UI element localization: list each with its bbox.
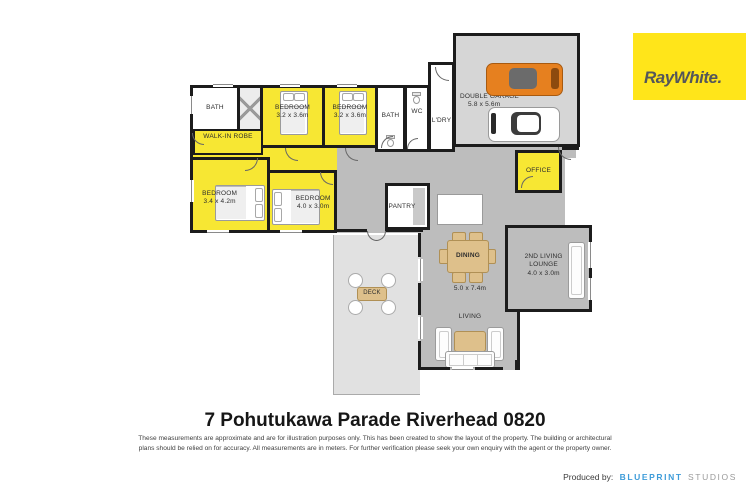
window-icon xyxy=(213,82,233,87)
deck-label: DECK xyxy=(363,290,380,298)
sofa-icon xyxy=(445,351,495,368)
wall-segment xyxy=(337,229,367,232)
pantry-label: PANTRY xyxy=(388,203,416,211)
room-bedroom2: BEDROOM 3.2 x 3.6m xyxy=(322,85,378,148)
window-icon xyxy=(280,230,302,235)
bedroom1-label: BEDROOM 3.2 x 3.6m xyxy=(263,104,322,121)
window-icon xyxy=(189,96,194,114)
wc-label: WC xyxy=(407,108,427,116)
window-icon xyxy=(418,317,423,339)
deck-chair-icon xyxy=(381,273,396,288)
white-car-icon xyxy=(488,107,560,142)
window-icon xyxy=(418,259,423,281)
room-pantry: PANTRY xyxy=(385,183,430,230)
window-icon xyxy=(588,278,593,300)
producer-credit: Produced by: BLUEPRINT STUDIOS xyxy=(0,472,737,482)
coffee-table-icon xyxy=(454,331,486,352)
wall-segment xyxy=(418,341,421,370)
window-icon xyxy=(207,230,229,235)
room-garage: DOUBLE GARAGE 5.8 x 5.6m xyxy=(453,33,580,147)
deck-chair-icon xyxy=(381,300,396,315)
window-icon xyxy=(280,82,300,87)
dining-chair-icon xyxy=(452,272,466,283)
office-label: OFFICE xyxy=(526,167,551,175)
wall-segment xyxy=(385,229,423,232)
window-icon xyxy=(189,180,194,202)
studios-brand: STUDIOS xyxy=(688,472,737,482)
wall-segment xyxy=(475,367,503,370)
walkin-robe-label: WALK-IN ROBE xyxy=(195,133,261,141)
room-office: OFFICE xyxy=(515,150,562,193)
bedroom3-label: BEDROOM 3.4 x 4.2m xyxy=(193,190,246,207)
room-bath1: BATH xyxy=(190,85,240,132)
room-laundry: L'DRY xyxy=(428,62,455,152)
dining-label: DINING xyxy=(456,252,480,260)
deck-area xyxy=(333,235,420,395)
floor-plan: BATH BEDROOM 3.2 x 3.6m BEDROOM 3.2 x 3.… xyxy=(185,30,655,405)
ldry-label: L'DRY xyxy=(431,117,452,125)
toilet-icon xyxy=(412,92,421,104)
wall-segment xyxy=(418,367,450,370)
living-dims-label: 5.0 x 7.4m xyxy=(435,285,505,293)
deck-chair-icon xyxy=(348,300,363,315)
bedroom2-label: BEDROOM 3.2 x 3.6m xyxy=(325,104,375,121)
disclaimer-text: These measurements are approximate and a… xyxy=(0,434,750,454)
dining-chair-icon xyxy=(469,272,483,283)
wall-segment xyxy=(517,312,520,364)
wall-segment xyxy=(418,233,421,257)
deck-chair-icon xyxy=(348,273,363,288)
blueprint-brand: BLUEPRINT xyxy=(620,472,683,482)
deck-table-icon: DECK xyxy=(357,287,387,301)
couch-icon xyxy=(568,242,585,299)
window-icon xyxy=(588,242,593,268)
room-bedroom3: BEDROOM 3.4 x 4.2m xyxy=(190,157,270,233)
window-icon xyxy=(337,82,357,87)
orange-car-icon xyxy=(486,63,563,96)
office-door-arc xyxy=(521,176,533,188)
room-second-living: 2ND LIVING LOUNGE 4.0 x 3.0m xyxy=(505,225,592,312)
produced-by-label: Produced by: xyxy=(563,472,613,482)
page-title: 7 Pohutukawa Parade Riverhead 0820 xyxy=(0,410,750,432)
bedroom4-label: BEDROOM 4.0 x 3.0m xyxy=(293,195,333,212)
kitchen-island-icon xyxy=(437,194,483,225)
room-bedroom1: BEDROOM 3.2 x 3.6m xyxy=(260,85,325,148)
window-icon xyxy=(452,367,473,372)
wall-segment xyxy=(418,283,421,315)
bath2-label: BATH xyxy=(378,112,403,120)
dining-table-icon: DINING xyxy=(447,240,489,273)
bath1-label: BATH xyxy=(206,104,224,112)
living-label: LIVING xyxy=(435,313,505,321)
entry-door-arc xyxy=(435,67,449,81)
